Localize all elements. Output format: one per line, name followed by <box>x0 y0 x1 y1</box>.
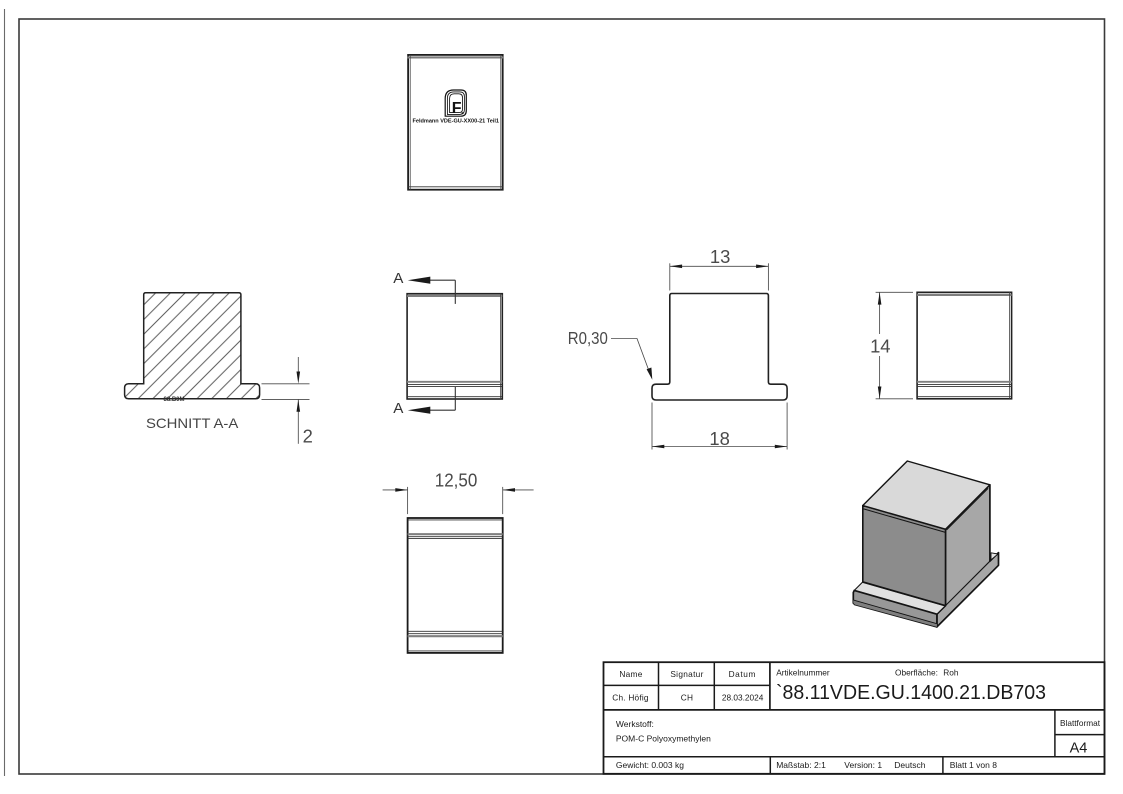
svg-text:14: 14 <box>870 335 890 356</box>
svg-text:Roh: Roh <box>943 668 959 678</box>
svg-text:2: 2 <box>303 425 313 446</box>
svg-text:18: 18 <box>709 428 729 449</box>
svg-text:POM-C Polyoxymethylen: POM-C Polyoxymethylen <box>616 734 711 744</box>
svg-text:Name: Name <box>619 669 642 679</box>
svg-text:Ch. Höfig: Ch. Höfig <box>612 692 649 702</box>
svg-text:Feldmann VDE-GU-XX00-21 Teil1: Feldmann VDE-GU-XX00-21 Teil1 <box>413 118 500 124</box>
svg-text:Oberfläche:: Oberfläche: <box>895 668 938 678</box>
svg-text:88.B0M: 88.B0M <box>163 397 184 403</box>
svg-text:CH: CH <box>681 692 694 702</box>
svg-text:R0,30: R0,30 <box>568 328 608 348</box>
svg-text:Version: 1: Version: 1 <box>844 760 882 770</box>
svg-text:Blatt 1 von 8: Blatt 1 von 8 <box>950 760 998 770</box>
svg-text:A4: A4 <box>1070 741 1088 757</box>
svg-text:Maßstab: 2:1: Maßstab: 2:1 <box>776 760 826 770</box>
svg-text:Datum: Datum <box>729 669 756 679</box>
svg-text:SCHNITT A-A: SCHNITT A-A <box>146 415 239 431</box>
svg-text:Deutsch: Deutsch <box>894 760 925 770</box>
svg-text:13: 13 <box>710 246 730 267</box>
svg-text:28.03.2024: 28.03.2024 <box>722 692 764 702</box>
svg-text:Gewicht: 0.003 kg: Gewicht: 0.003 kg <box>616 760 684 770</box>
svg-text:F: F <box>452 100 462 117</box>
svg-text:12,50: 12,50 <box>435 470 478 491</box>
svg-text:Artikelnummer: Artikelnummer <box>776 668 830 678</box>
svg-text:`88.11VDE.GU.1400.21.DB703: `88.11VDE.GU.1400.21.DB703 <box>776 682 1046 704</box>
svg-text:A: A <box>393 270 404 287</box>
svg-text:Signatur: Signatur <box>670 669 703 679</box>
svg-text:Werkstoff:: Werkstoff: <box>616 719 654 729</box>
svg-text:A: A <box>393 400 404 417</box>
svg-text:Blattformat: Blattformat <box>1060 718 1101 728</box>
